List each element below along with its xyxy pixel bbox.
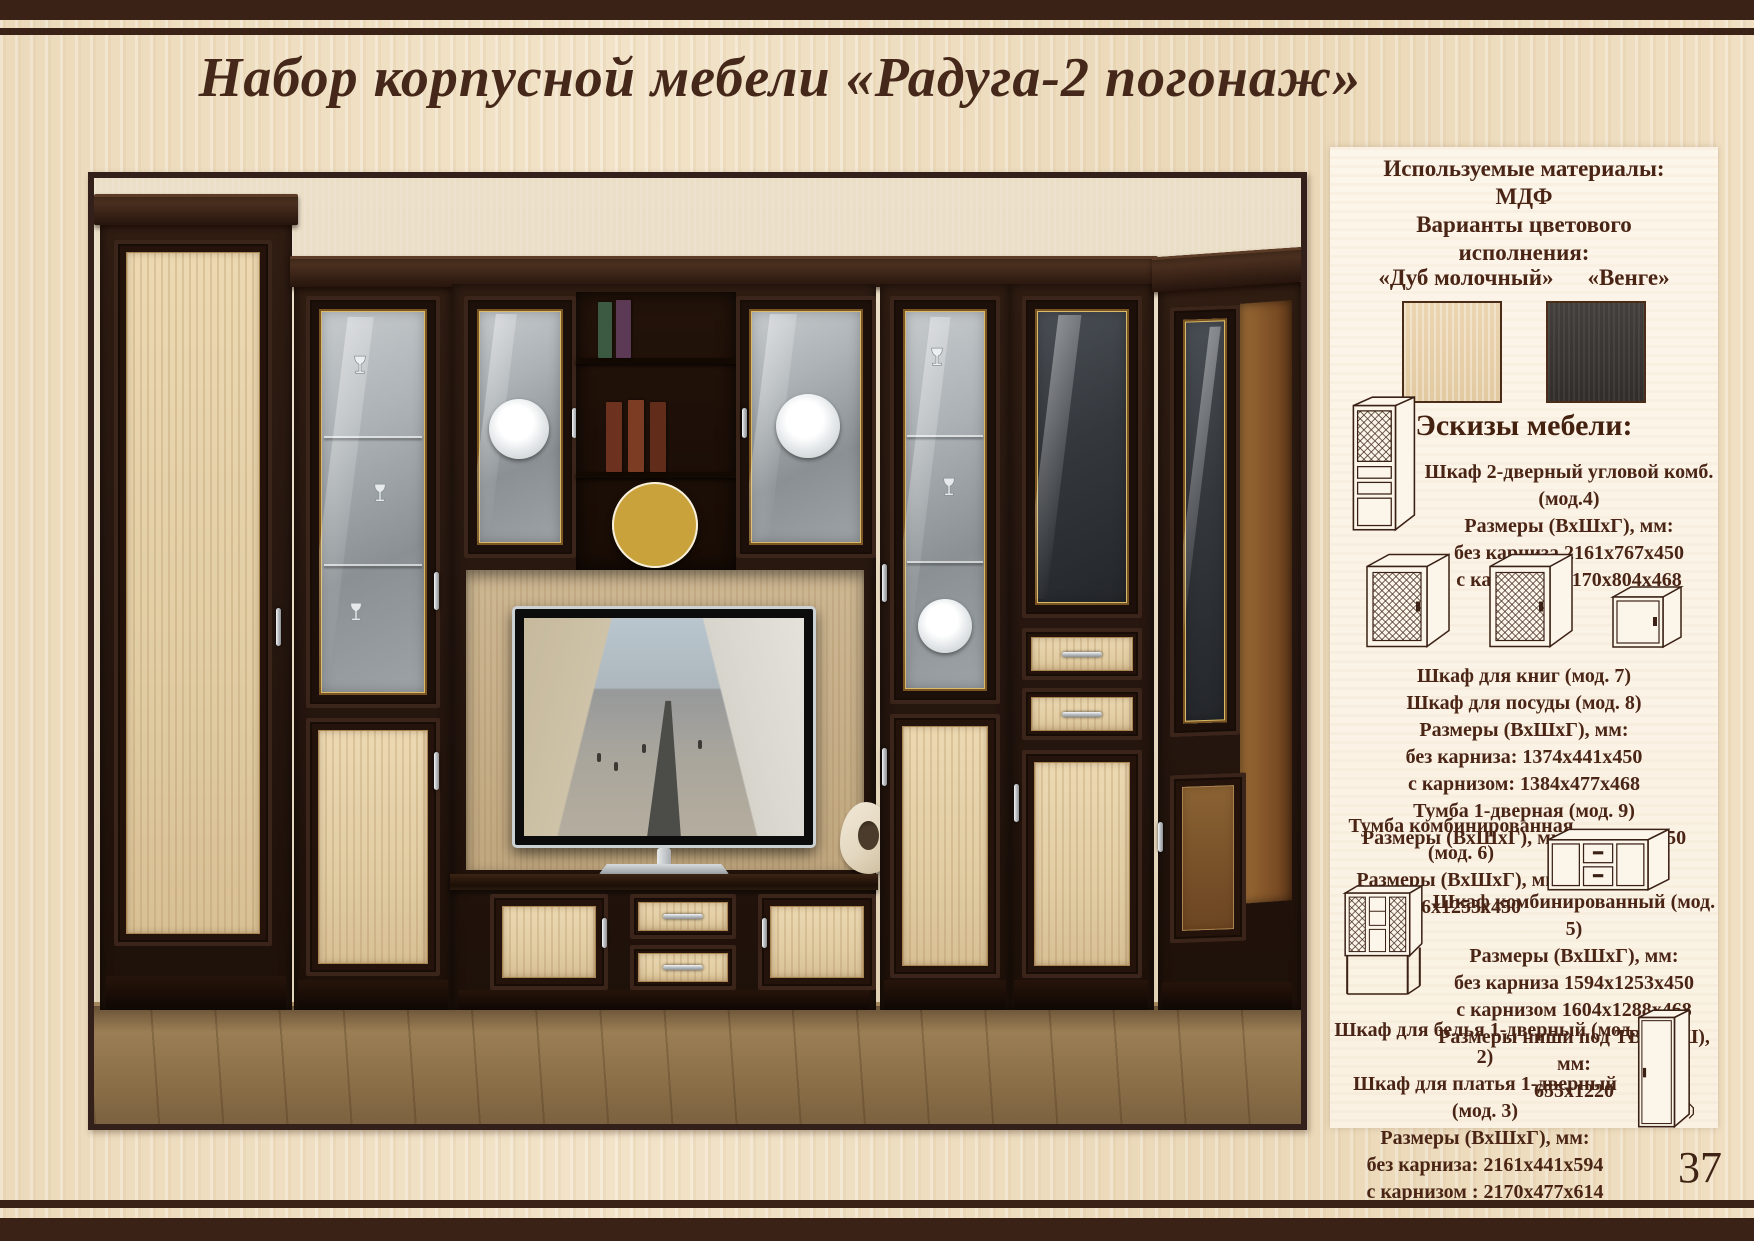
display-left-lower-door	[306, 718, 440, 976]
goblet-icon	[928, 347, 946, 373]
drawer-handle	[1062, 712, 1102, 717]
glass-glint	[1035, 315, 1081, 599]
bottom-border-bar	[0, 1218, 1754, 1241]
bottom-rule-line	[0, 1200, 1754, 1208]
display-left-lower-handle	[434, 752, 439, 790]
text-line: Шкаф для белья 1-дверный (мод. 2)	[1330, 1017, 1640, 1071]
white-plate	[489, 399, 549, 459]
right-glass	[1035, 309, 1129, 605]
center-glass-right-handle	[742, 408, 747, 438]
tv-street-path	[524, 618, 804, 836]
tv-person	[642, 744, 646, 753]
goblet-icon	[351, 355, 369, 381]
book	[606, 402, 622, 472]
text-line: (мод.4)	[1424, 486, 1714, 513]
book	[616, 300, 631, 358]
goblet-icon	[371, 483, 389, 509]
vase-hole	[858, 821, 879, 850]
goblet-icon	[940, 477, 958, 503]
display-left-glass	[319, 309, 427, 695]
info-sidebar: Используемые материалы: МДФ Варианты цве…	[1330, 147, 1718, 1128]
center-lower-left-handle	[602, 918, 607, 948]
panel	[770, 906, 864, 978]
center-lower-door-left	[490, 894, 608, 990]
shelf-board	[576, 472, 736, 478]
right-lower-door	[1022, 750, 1142, 978]
corner-cabinet	[1158, 282, 1302, 1010]
text-line: Используемые материалы:	[1383, 156, 1664, 181]
golden-plate	[612, 482, 698, 568]
text-line: без карниза: 2161х441х594	[1330, 1152, 1640, 1179]
white-plate	[776, 394, 840, 458]
display-right-lower-handle	[882, 748, 887, 786]
swatch-venge	[1546, 301, 1646, 403]
display-cabinet-left	[294, 282, 452, 1010]
tv-person	[597, 753, 601, 762]
glass-shelf	[324, 436, 421, 438]
wardrobe-left-door	[114, 240, 272, 946]
wardrobe-left-plinth	[106, 976, 286, 1010]
drawer-handle	[663, 914, 703, 919]
center-lower-right-handle	[762, 918, 767, 948]
center-drawer-1	[630, 894, 736, 939]
shelf-board	[576, 358, 736, 364]
wardrobe-left-door-panel	[126, 252, 260, 934]
display-right-plinth	[884, 980, 1006, 1010]
corner-glass-door	[1170, 305, 1240, 737]
top-rule-line	[0, 28, 1754, 35]
display-right-glass-door	[890, 296, 1000, 704]
color-swatches	[1330, 301, 1718, 403]
center-glass-door-left	[464, 296, 576, 558]
corner-glass	[1183, 318, 1227, 724]
panel	[1182, 785, 1234, 931]
drawer-handle	[663, 965, 703, 970]
text-line: без карниза: 1374х441х450	[1330, 744, 1718, 771]
materials-line: МДФ	[1330, 183, 1718, 211]
display-right-handle	[882, 564, 887, 602]
sketch-block-5-text: Шкаф для белья 1-дверный (мод. 2) Шкаф д…	[1330, 1017, 1640, 1206]
corner-side-panel	[1240, 300, 1292, 904]
center-cornice	[290, 256, 1158, 287]
text-line: Шкаф комбинированный (мод. 5)	[1430, 889, 1718, 943]
corner-lower-door	[1170, 773, 1246, 944]
glass-shelf	[907, 561, 983, 563]
sketch-combined-cabinet-icon	[1340, 883, 1428, 999]
glass-glint	[1183, 327, 1220, 717]
tv-person	[614, 762, 618, 771]
furniture-photo	[88, 172, 1307, 1130]
panel	[502, 906, 596, 978]
display-left-plinth	[298, 980, 448, 1010]
wardrobe-left-handle	[276, 608, 281, 646]
corner-plinth	[1162, 982, 1292, 1010]
text-line: Шкаф для книг (мод. 7)	[1330, 663, 1718, 690]
tv-stand-neck	[657, 848, 671, 866]
tv-person	[698, 740, 702, 749]
center-counter	[450, 874, 878, 890]
right-lower-handle	[1014, 784, 1019, 822]
text-line: с карнизом: 1384х477х468	[1330, 771, 1718, 798]
text-line: исполнения:	[1459, 240, 1590, 265]
page-number: 37	[1660, 1142, 1740, 1193]
wardrobe-left-cornice	[94, 194, 298, 225]
sketch-book-cabinet-icon	[1361, 547, 1456, 655]
display-right-glass	[903, 309, 987, 691]
white-plate	[918, 599, 972, 653]
book	[598, 302, 612, 358]
book	[650, 402, 666, 472]
right-drawer-2	[1022, 688, 1142, 740]
display-right-lower-door	[890, 714, 1000, 978]
materials-line: Используемые материалы:	[1330, 155, 1718, 183]
tv	[512, 606, 816, 848]
display-cabinet-right	[880, 284, 1010, 1010]
sketch-tv-stand-icon	[1544, 819, 1674, 897]
color-label-dub: «Дуб молочный»	[1378, 265, 1553, 291]
text-line: Шкаф 2-дверный угловой комб.	[1424, 459, 1714, 486]
right-drawer-1	[1022, 628, 1142, 680]
top-border-bar	[0, 0, 1754, 20]
text-line: Варианты цветового	[1416, 212, 1632, 237]
book	[628, 400, 644, 472]
panel	[902, 726, 988, 966]
color-labels-row: «Дуб молочный» «Венге»	[1330, 265, 1718, 291]
text-line: Размеры (ВхШхГ), мм:	[1330, 1125, 1640, 1152]
glass-shelf	[907, 435, 983, 437]
cabinet-drawers-right	[1010, 284, 1154, 1010]
color-label-venge: «Венге»	[1587, 265, 1669, 291]
materials-line: исполнения:	[1330, 239, 1718, 267]
sketch-corner-cabinet-icon	[1348, 393, 1424, 535]
text-line: Размеры (ВхШхГ), мм:	[1330, 717, 1718, 744]
right-plinth	[1014, 980, 1148, 1010]
text-line: Размеры (ВхШхГ), мм:	[1430, 943, 1718, 970]
center-shelf-unit	[576, 292, 736, 570]
center-glass-right	[749, 309, 863, 545]
sketch-row	[1330, 547, 1718, 655]
center-lower-door-right	[758, 894, 876, 990]
display-left-handle	[434, 572, 439, 610]
glass-shelf	[324, 564, 421, 566]
sketch-tumba-icon	[1607, 571, 1687, 655]
catalog-page: Набор корпусной мебели «Радуга-2 погонаж…	[0, 0, 1754, 1241]
text-line: МДФ	[1496, 184, 1553, 209]
right-glass-door	[1022, 296, 1142, 618]
center-glass-door-right	[736, 296, 876, 558]
panel	[1034, 762, 1130, 966]
text-line: Шкаф для посуды (мод. 8)	[1330, 690, 1718, 717]
sketch-dish-cabinet-icon	[1484, 547, 1579, 655]
text-line: Шкаф для платья 1-дверный (мод. 3)	[1330, 1071, 1640, 1125]
sketch-wardrobe-icon	[1634, 1007, 1696, 1133]
text-line: без карниза 1594х1253х450	[1430, 970, 1718, 997]
materials-line: Варианты цветового	[1330, 211, 1718, 239]
swatch-dub-molochny	[1402, 301, 1502, 403]
tv-stand-base	[599, 864, 729, 874]
text-line: Размеры (ВхШхГ), мм:	[1424, 513, 1714, 540]
goblet-icon	[347, 602, 365, 628]
center-plinth	[458, 990, 870, 1010]
display-left-glass-door	[306, 296, 440, 708]
center-drawer-2	[630, 945, 736, 990]
center-glass-left	[477, 309, 563, 545]
display-left-lower-panel	[318, 730, 428, 964]
page-title: Набор корпусной мебели «Радуга-2 погонаж…	[90, 46, 1470, 110]
drawer-handle	[1062, 652, 1102, 657]
wardrobe-left	[100, 218, 292, 1010]
tv-screen	[524, 618, 804, 836]
corner-handle	[1158, 822, 1163, 852]
